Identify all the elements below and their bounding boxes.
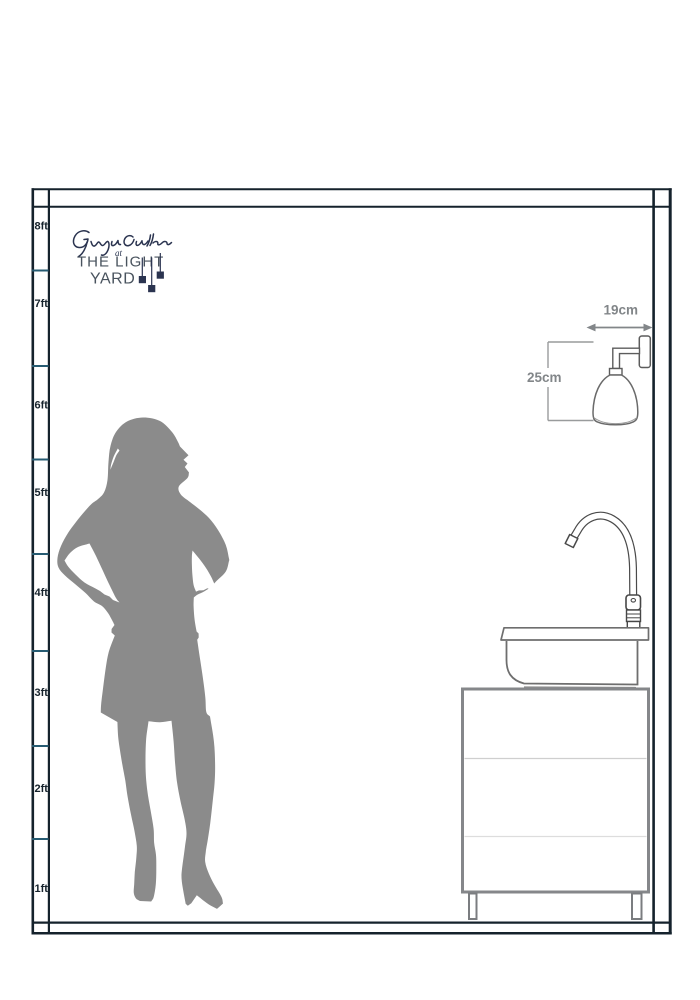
svg-text:5ft: 5ft xyxy=(35,487,49,499)
svg-text:2ft: 2ft xyxy=(35,783,49,795)
svg-text:YARD: YARD xyxy=(90,271,135,288)
svg-text:4ft: 4ft xyxy=(35,587,49,599)
svg-text:8ft: 8ft xyxy=(35,220,49,232)
svg-text:25cm: 25cm xyxy=(527,370,562,385)
svg-text:19cm: 19cm xyxy=(604,303,639,318)
svg-text:7ft: 7ft xyxy=(35,298,49,310)
svg-text:1ft: 1ft xyxy=(35,883,49,895)
svg-text:3ft: 3ft xyxy=(35,687,49,699)
svg-text:6ft: 6ft xyxy=(35,399,49,411)
